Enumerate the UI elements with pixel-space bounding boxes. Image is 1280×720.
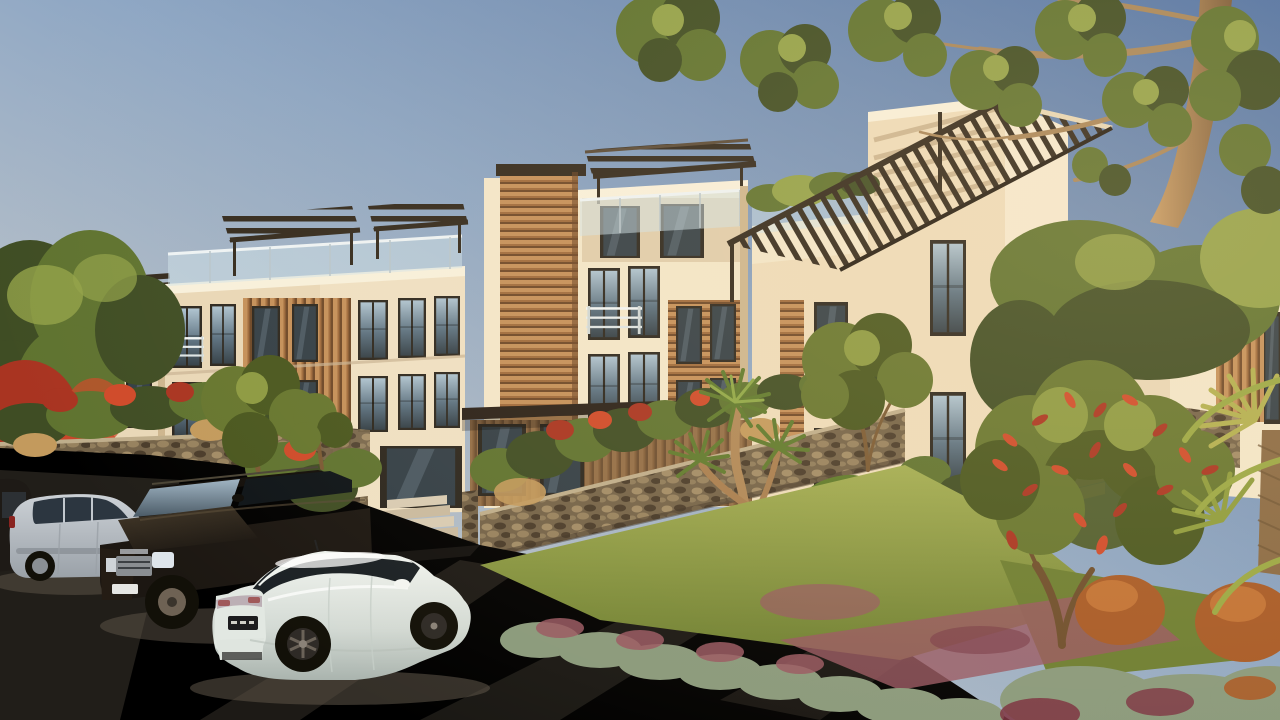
sunlight-glow (0, 0, 1280, 720)
architectural-render: Photorealistic rendering of a modern thr… (0, 0, 1280, 720)
